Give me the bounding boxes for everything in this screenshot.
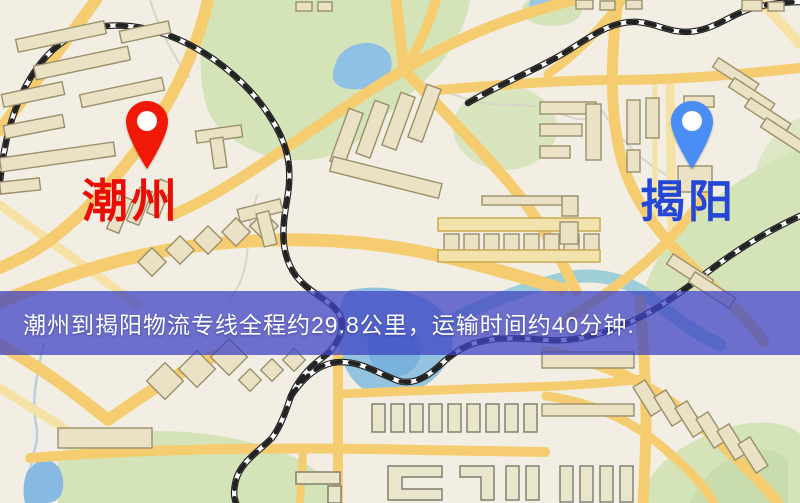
origin-city-label: 潮州 [82, 178, 180, 224]
route-info-banner: 潮州到揭阳物流专线全程约29.8公里，运输时间约40分钟. [0, 291, 800, 355]
destination-city-label: 揭阳 [640, 179, 736, 224]
map-canvas[interactable] [0, 0, 800, 503]
logistics-route-map: 潮州 揭阳 潮州到揭阳物流专线全程约29.8公里，运输时间约40分钟. [0, 0, 800, 503]
blue-location-pin-icon [668, 99, 716, 171]
red-location-pin-icon [123, 99, 171, 171]
origin-marker[interactable] [123, 99, 171, 171]
route-info-text: 潮州到揭阳物流专线全程约29.8公里，运输时间约40分钟. [23, 306, 635, 340]
destination-marker[interactable] [668, 99, 716, 171]
